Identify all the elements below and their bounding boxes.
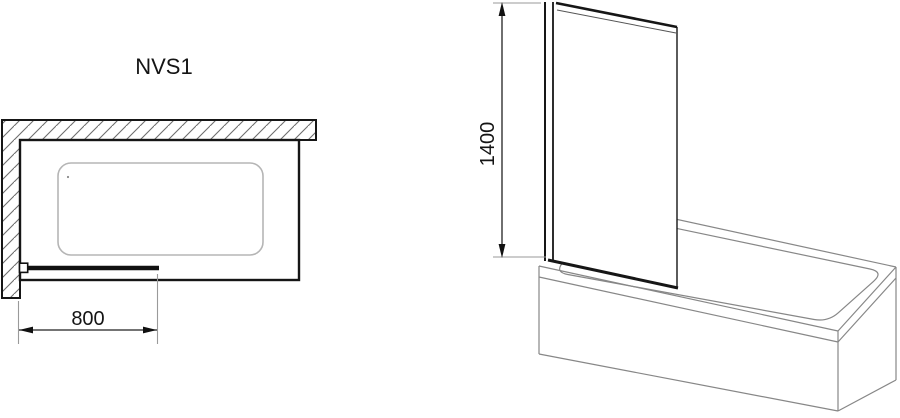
height-dimension: 1400	[477, 2, 546, 258]
technical-diagram: NVS1 800	[0, 0, 900, 418]
arrowhead-right	[143, 327, 157, 334]
width-dimension: 800	[19, 274, 158, 344]
top-view: NVS1 800	[2, 54, 316, 344]
side-view: 1400	[477, 2, 896, 411]
arrowhead-left	[19, 327, 33, 334]
product-model-title: NVS1	[135, 54, 192, 79]
arrowhead-up	[499, 2, 506, 16]
glass-panel	[548, 3, 678, 288]
wall-mount-bracket	[20, 263, 28, 272]
technical-diagram-page: NVS1 800	[0, 0, 900, 418]
height-dimension-label: 1400	[477, 122, 499, 167]
glass-face	[549, 3, 677, 287]
arrowhead-down	[499, 244, 506, 258]
drawing-speck	[67, 176, 69, 178]
bathtub-outline-top-view	[20, 140, 299, 280]
width-dimension-label: 800	[71, 308, 104, 330]
